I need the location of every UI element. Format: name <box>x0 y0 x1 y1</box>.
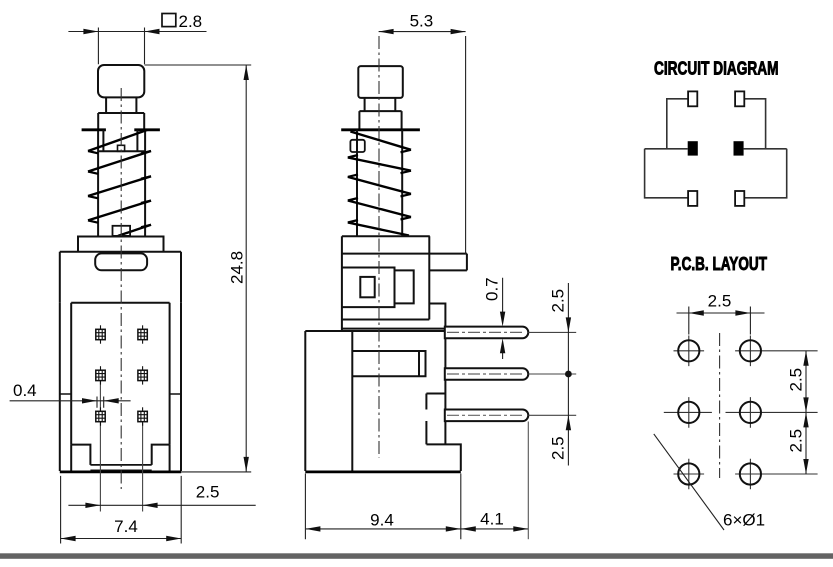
svg-text:2.5: 2.5 <box>787 368 806 392</box>
svg-text:2.5: 2.5 <box>549 289 568 313</box>
svg-text:2.5: 2.5 <box>549 436 568 460</box>
svg-text:24.8: 24.8 <box>228 251 247 284</box>
svg-text:5.3: 5.3 <box>410 11 434 30</box>
svg-text:9.4: 9.4 <box>370 511 394 530</box>
svg-text:P.C.B. LAYOUT: P.C.B. LAYOUT <box>671 254 768 274</box>
svg-text:2.5: 2.5 <box>196 483 220 502</box>
svg-text:CIRCUIT DIAGRAM: CIRCUIT DIAGRAM <box>654 58 779 78</box>
svg-text:7.4: 7.4 <box>114 517 138 536</box>
svg-text:0.4: 0.4 <box>13 381 37 400</box>
svg-text:2.8: 2.8 <box>179 12 203 31</box>
svg-text:2.5: 2.5 <box>787 429 806 453</box>
svg-text:2.5: 2.5 <box>708 292 732 311</box>
svg-text:6×Ø1: 6×Ø1 <box>723 510 765 529</box>
svg-text:0.7: 0.7 <box>483 277 502 301</box>
svg-text:4.1: 4.1 <box>480 510 504 529</box>
